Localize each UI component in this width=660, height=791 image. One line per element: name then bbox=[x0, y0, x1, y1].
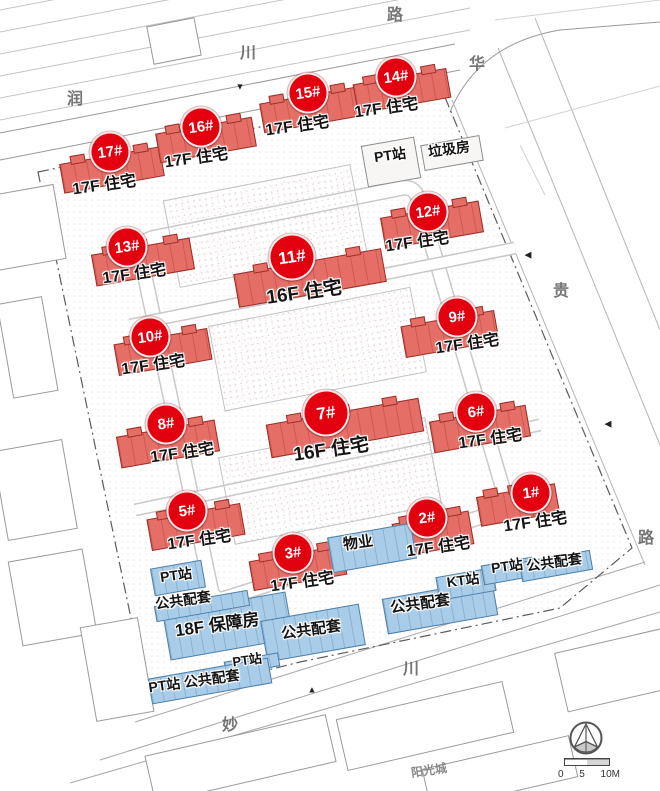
building-wing bbox=[439, 411, 455, 422]
building-wing bbox=[409, 316, 425, 327]
road-name-char-0: 润 bbox=[67, 85, 83, 109]
entrance-marker-2: ◀ bbox=[605, 420, 612, 429]
facility-blue-label-0: 物业 bbox=[342, 530, 375, 555]
building-wing bbox=[163, 234, 179, 245]
road-name-char-1: 川 bbox=[240, 39, 256, 63]
entrance-marker-3: ▲ bbox=[308, 686, 317, 695]
building-wing bbox=[285, 413, 301, 424]
road-name-char-4: 贵 bbox=[553, 277, 569, 301]
building-wing bbox=[446, 506, 462, 517]
road-name-char-7: 妙 bbox=[222, 711, 238, 735]
building-wing bbox=[329, 83, 345, 94]
building-wing bbox=[390, 207, 406, 218]
building-wing bbox=[165, 123, 181, 134]
entrance-marker-1: ◀ bbox=[525, 251, 532, 260]
road-name-char-2: 路 bbox=[387, 1, 403, 25]
compass bbox=[568, 720, 604, 761]
building-wing bbox=[225, 113, 241, 124]
building-wing bbox=[252, 262, 268, 273]
scale-bar: 0 5 10M bbox=[558, 758, 622, 780]
entrance-marker-0: ▼ bbox=[236, 83, 245, 92]
road-name-char-5: 路 bbox=[638, 524, 654, 548]
scale-label-10m: 10M bbox=[601, 769, 620, 780]
building-wing bbox=[345, 246, 361, 257]
building-wing bbox=[420, 64, 436, 75]
road-name-char-3: 华 bbox=[469, 50, 485, 74]
building-wing bbox=[382, 396, 398, 407]
building-wing bbox=[269, 93, 285, 104]
building-wing bbox=[499, 401, 515, 412]
site-plan: 0 5 10M 17F 住宅17#17F 住宅16#17F 住宅15#17F 住… bbox=[0, 0, 660, 791]
building-wing bbox=[188, 416, 204, 427]
road-name-char-6: 川 bbox=[403, 655, 419, 679]
building-wing bbox=[181, 324, 197, 335]
building-wing bbox=[132, 142, 148, 153]
scale-label-5: 5 bbox=[579, 769, 585, 780]
building-wing bbox=[69, 154, 85, 165]
building-wing bbox=[214, 499, 230, 510]
building-wing bbox=[126, 426, 142, 437]
scale-bar-graphic bbox=[564, 758, 610, 766]
north-arrow-icon bbox=[568, 720, 604, 756]
building-wing bbox=[482, 487, 498, 498]
building-wing bbox=[452, 197, 468, 208]
scale-label-0: 0 bbox=[558, 769, 564, 780]
